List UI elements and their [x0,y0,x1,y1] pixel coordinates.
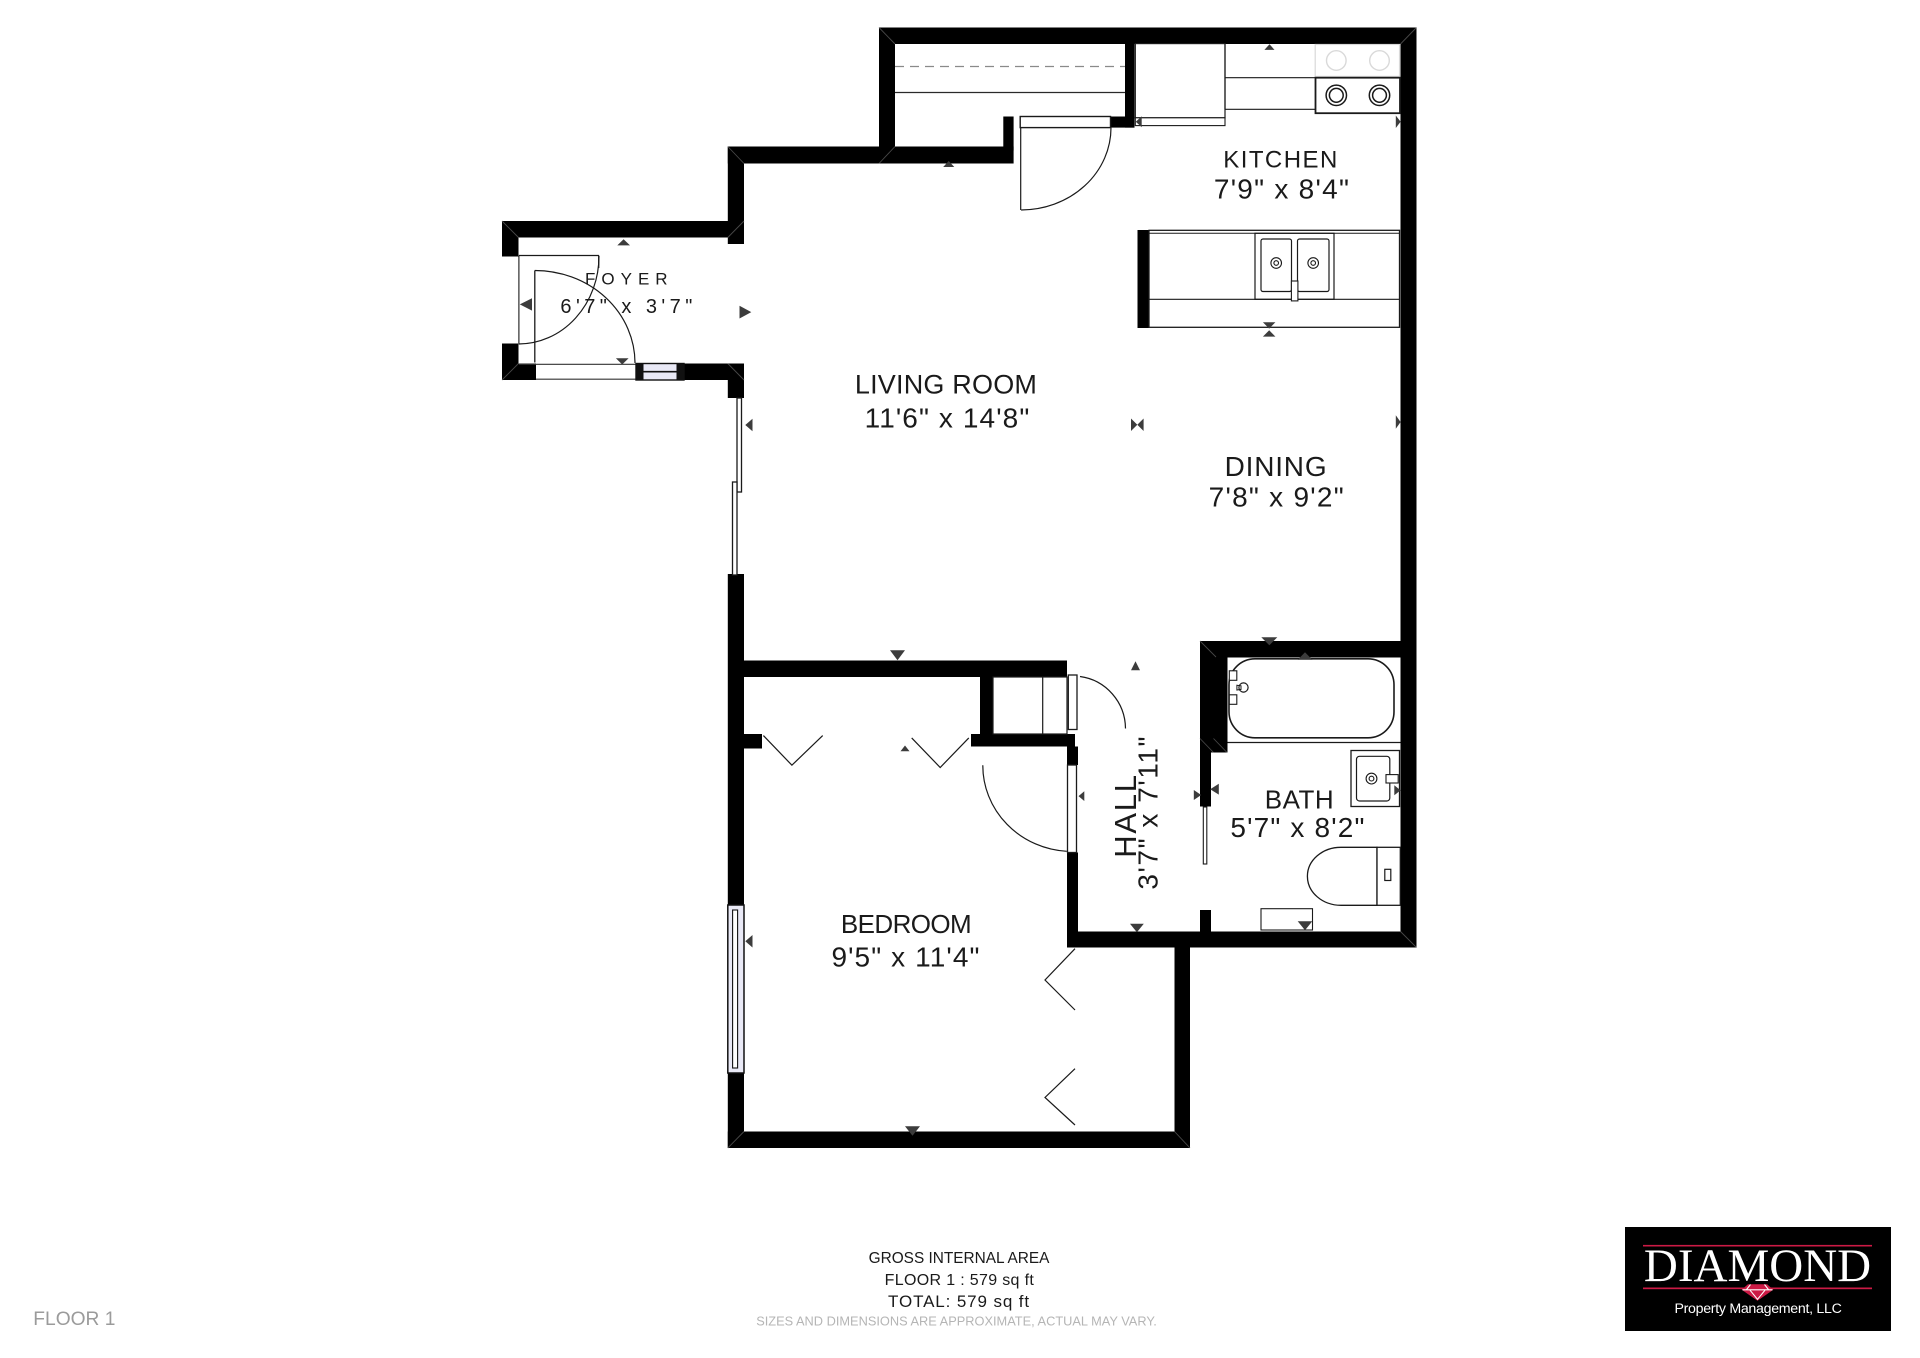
svg-text:BEDROOM: BEDROOM [841,909,971,939]
svg-text:3'7" x 7'11": 3'7" x 7'11" [1133,735,1164,890]
svg-text:7'9" x 8'4": 7'9" x 8'4" [1214,174,1350,205]
svg-text:9'5" x 11'4": 9'5" x 11'4" [831,942,980,973]
svg-text:BATH: BATH [1265,785,1334,815]
svg-text:FLOOR 1: FLOOR 1 [33,1309,115,1330]
svg-text:KITCHEN: KITCHEN [1223,146,1339,173]
svg-text:SIZES AND DIMENSIONS ARE APPRO: SIZES AND DIMENSIONS ARE APPROXIMATE, AC… [756,1314,1157,1329]
svg-text:6'7" x 3'7": 6'7" x 3'7" [560,296,696,318]
svg-text:GROSS INTERNAL AREA: GROSS INTERNAL AREA [869,1250,1050,1267]
svg-text:DINING: DINING [1225,451,1328,482]
svg-text:LIVING ROOM: LIVING ROOM [855,370,1037,400]
svg-text:DIAMOND: DIAMOND [1644,1240,1871,1292]
svg-text:5'7" x 8'2": 5'7" x 8'2" [1230,812,1365,843]
svg-text:11'6" x 14'8": 11'6" x 14'8" [865,403,1031,434]
svg-text:Property Management, LLC: Property Management, LLC [1674,1301,1841,1317]
svg-text:FOYER: FOYER [585,270,674,289]
svg-text:FLOOR 1 : 579 sq ft: FLOOR 1 : 579 sq ft [885,1272,1035,1289]
svg-text:TOTAL: 579 sq ft: TOTAL: 579 sq ft [888,1292,1030,1311]
svg-text:7'8" x 9'2": 7'8" x 9'2" [1209,482,1345,513]
